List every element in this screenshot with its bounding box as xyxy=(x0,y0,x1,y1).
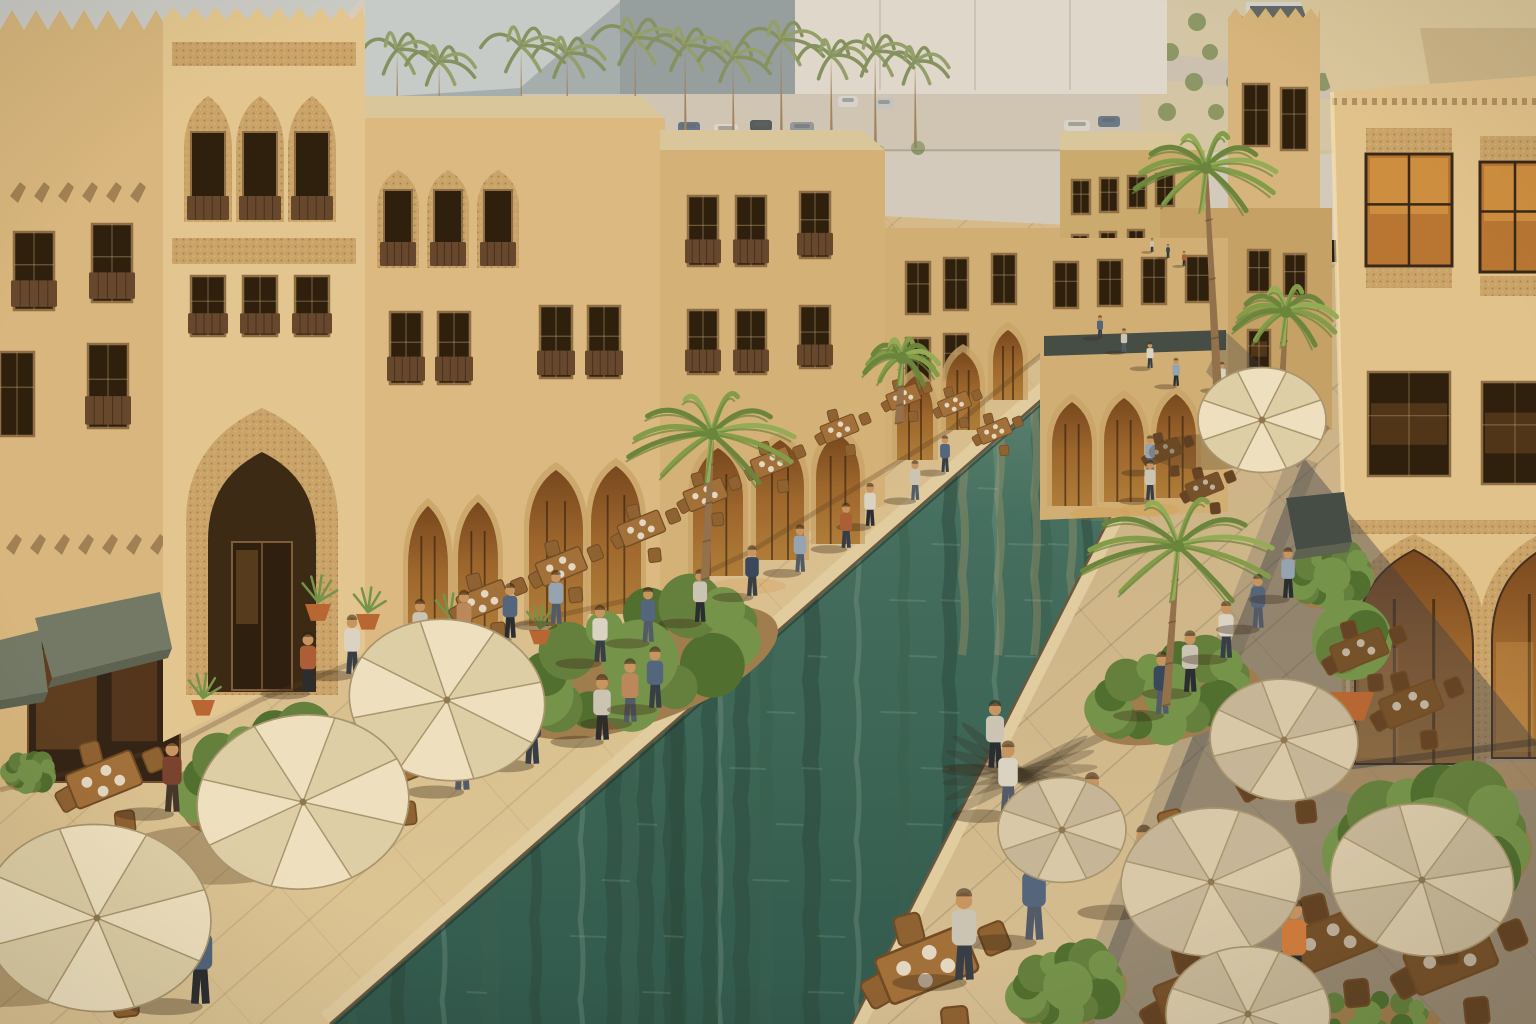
scene-canvas xyxy=(0,0,1536,1024)
scene-aerial-souk-promenade xyxy=(0,0,1536,1024)
vignette-overlay xyxy=(0,0,1536,1024)
